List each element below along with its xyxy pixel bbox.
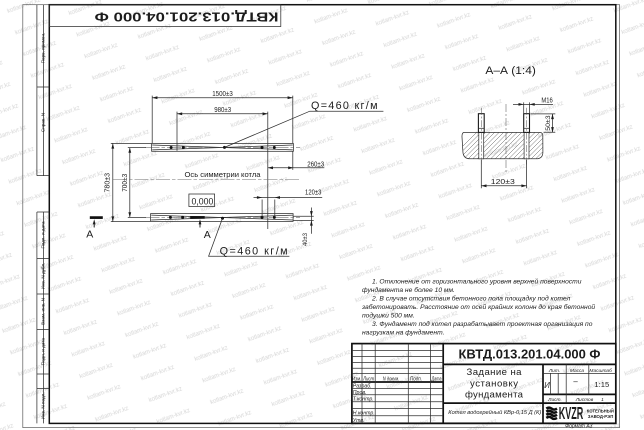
svg-text:Перв. примен.: Перв. примен. xyxy=(40,33,45,64)
svg-text:Н.контр.: Н.контр. xyxy=(353,411,375,417)
svg-text:Утв.: Утв. xyxy=(353,418,365,424)
svg-text:2. В случае отсутствия бетонно: 2. В случае отсутствия бетонного пола пл… xyxy=(371,295,570,303)
svg-text:Т.контр.: Т.контр. xyxy=(353,397,374,403)
svg-text:КОТЕЛЬНЫЙ: КОТЕЛЬНЫЙ xyxy=(587,407,614,414)
svg-text:фундамента: фундамента xyxy=(465,390,524,401)
svg-text:Инв. N дубл.: Инв. N дубл. xyxy=(40,263,45,290)
svg-text:1500±3: 1500±3 xyxy=(212,91,233,98)
svg-text:Ось симметрии котла: Ось симметрии котла xyxy=(185,170,261,179)
svg-text:Масса: Масса xyxy=(570,368,585,374)
svg-text:А: А xyxy=(204,229,211,241)
svg-text:N докум.: N докум. xyxy=(383,377,400,383)
svg-text:установку: установку xyxy=(470,378,518,389)
svg-text:KVZR: KVZR xyxy=(559,403,584,423)
svg-text:Формат А3: Формат А3 xyxy=(565,423,593,429)
svg-text:Q=460 кг/м: Q=460 кг/м xyxy=(311,100,378,112)
svg-text:120±3: 120±3 xyxy=(305,190,321,197)
svg-text:Листов: Листов xyxy=(575,397,594,403)
svg-text:Подп.: Подп. xyxy=(410,377,422,383)
svg-text:Подп. и дата: Подп. и дата xyxy=(40,221,45,249)
svg-text:700±3: 700±3 xyxy=(122,174,129,192)
svg-text:фундамента не более 10 мм.: фундамента не более 10 мм. xyxy=(362,286,455,294)
svg-text:Лист.: Лист. xyxy=(547,397,562,403)
svg-text:Справ. N: Справ. N xyxy=(40,113,45,132)
svg-text:40±3: 40±3 xyxy=(302,233,309,246)
svg-text:Масштаб: Масштаб xyxy=(589,368,612,374)
svg-text:Инв. N подл.: Инв. N подл. xyxy=(40,392,45,419)
svg-text:780±3: 780±3 xyxy=(104,173,111,193)
svg-text:Котел водогрейный КВр-0,15 Д (: Котел водогрейный КВр-0,15 Д (К) xyxy=(448,409,541,416)
svg-text:ЗАВОД-РЭП: ЗАВОД-РЭП xyxy=(588,414,614,419)
svg-text:Взам. инв. N: Взам. инв. N xyxy=(40,298,45,325)
svg-text:260±3: 260±3 xyxy=(307,162,324,169)
svg-text:3. Фундамент под котел разраба: 3. Фундамент под котел разрабатывает про… xyxy=(372,320,593,328)
svg-text:Подп. и дата: Подп. и дата xyxy=(40,338,45,366)
svg-text:подушки 500 мм.: подушки 500 мм. xyxy=(362,311,415,319)
svg-text:–: – xyxy=(573,377,578,386)
svg-text:А: А xyxy=(86,229,93,241)
svg-text:Q=460 кг/м: Q=460 кг/м xyxy=(220,245,288,257)
svg-text:нагрузкам на фундамент.: нагрузкам на фундамент. xyxy=(362,328,445,336)
svg-text:КВТД.013.201.04.000 Ф: КВТД.013.201.04.000 Ф xyxy=(95,10,279,25)
svg-text:Задание на: Задание на xyxy=(467,367,523,378)
svg-text:0,000: 0,000 xyxy=(192,196,214,207)
svg-text:1:15: 1:15 xyxy=(594,380,609,389)
svg-text:1: 1 xyxy=(601,397,604,403)
svg-text:КВТД.013.201.04.000 Ф: КВТД.013.201.04.000 Ф xyxy=(459,347,601,362)
svg-text:Лист: Лист xyxy=(362,377,374,383)
svg-text:забетонировать. Расстояние от: забетонировать. Расстояние от осей крайн… xyxy=(361,303,595,311)
svg-text:Пров.: Пров. xyxy=(353,390,367,396)
svg-text:Лит.: Лит. xyxy=(548,368,560,374)
svg-text:Разраб.: Разраб. xyxy=(353,384,372,390)
svg-text:1. Отклонение от горизонтально: 1. Отклонение от горизонтального уровня … xyxy=(372,278,582,286)
svg-text:Изм.: Изм. xyxy=(352,377,361,383)
svg-text:Дата: Дата xyxy=(431,377,442,383)
svg-text:M16: M16 xyxy=(541,97,552,104)
svg-text:50±3: 50±3 xyxy=(545,115,552,131)
svg-text:120±3: 120±3 xyxy=(491,179,515,186)
svg-text:И: И xyxy=(544,381,550,390)
svg-text:980±3: 980±3 xyxy=(214,107,231,114)
svg-text:А–А (1:4): А–А (1:4) xyxy=(485,65,536,77)
